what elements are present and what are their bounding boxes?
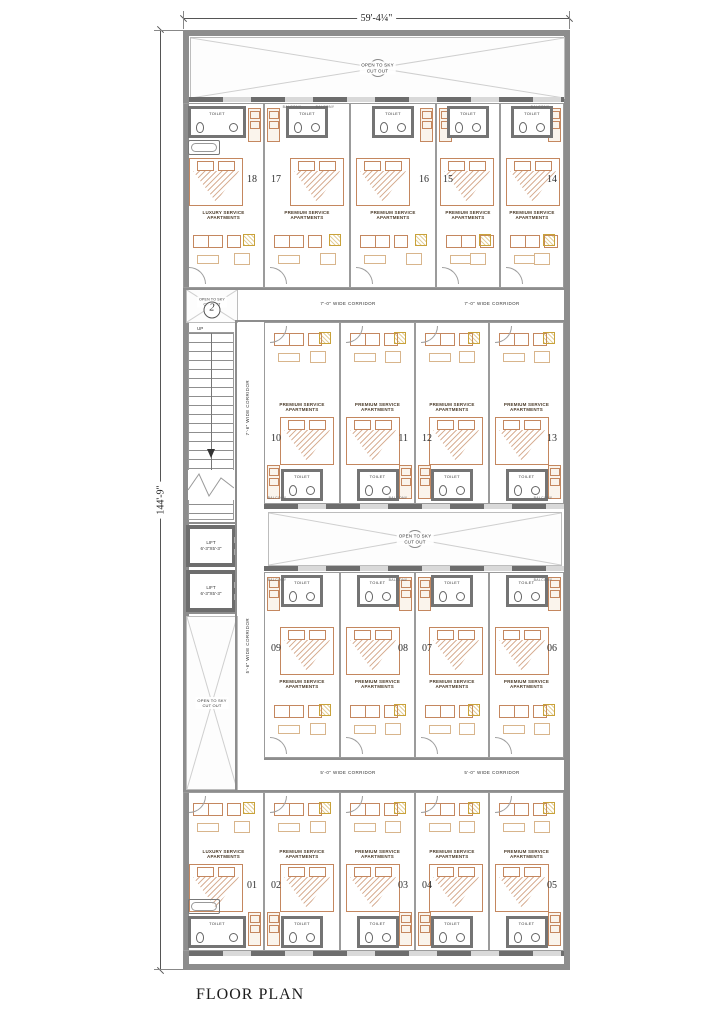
coffee-table-icon [197, 823, 219, 832]
kitchen-unit [399, 912, 412, 946]
kitchen-unit [267, 465, 280, 499]
kitchen-unit [399, 465, 412, 499]
loveseat-icon [350, 705, 380, 718]
kitchen-unit [267, 912, 280, 946]
wc-icon [365, 591, 373, 602]
open-to-sky-top: OPEN TO SKY CUT OUT [190, 37, 565, 99]
unit-type-label: LUXURY SERVICE APARTMENTS [194, 849, 254, 860]
ottoman-icon [406, 253, 422, 265]
ottoman-icon [470, 253, 486, 265]
kitchen-unit [267, 108, 280, 142]
wall [183, 522, 236, 524]
cut-out-text: CUT OUT [399, 539, 432, 545]
balcony-label: BALCONY [389, 496, 408, 500]
lift-size-label: 6'-3"X5'-3" [201, 591, 222, 597]
washbasin-icon [531, 592, 540, 601]
toilet-label: TOILET [519, 580, 535, 585]
balcony-label: BALCONY [531, 105, 550, 109]
wc-icon [439, 591, 447, 602]
double-bed [429, 417, 483, 465]
washbasin-icon [311, 123, 320, 132]
unit-10: TOILET 10 PREMIUM SERVICE APARTMENTS [264, 322, 340, 504]
washbasin-icon [382, 486, 391, 495]
kitchen-unit [248, 108, 261, 142]
side-table-icon [319, 332, 331, 344]
bathtub-icon [188, 899, 220, 914]
side-table-icon [543, 234, 555, 246]
toilet-label: TOILET [294, 580, 310, 585]
wc-icon [514, 591, 522, 602]
double-bed [280, 417, 334, 465]
corridor-label-top-left: 7'-0" WIDE CORRIDOR [320, 301, 375, 306]
unit-17: TOILET 17 PREMIUM SERVICE APARTMENTS [264, 103, 350, 288]
unit-type-label: PREMIUM SERVICE APARTMENTS [502, 210, 562, 221]
unit-number: 06 [547, 643, 557, 654]
toilet-label: TOILET [519, 474, 535, 479]
toilet-label: TOILET [370, 580, 386, 585]
unit-07: TOILET 07 PREMIUM SERVICE APARTMENTS [415, 572, 489, 758]
washbasin-icon [456, 592, 465, 601]
open-to-sky-corridor: OPEN TO SKY CUT OUT 2 [186, 289, 238, 323]
kitchen-unit [418, 912, 431, 946]
unit-11: TOILET 11 PREMIUM SERVICE APARTMENTS [340, 322, 415, 504]
kitchen-unit [418, 577, 431, 611]
toilet-label: TOILET [519, 921, 535, 926]
loveseat-icon [193, 235, 223, 248]
unit-type-label: PREMIUM SERVICE APARTMENTS [348, 402, 408, 413]
balcony-label: BALCONY [316, 105, 335, 109]
unit-type-label: LUXURY SERVICE APARTMENTS [194, 210, 254, 221]
washbasin-icon [536, 123, 545, 132]
double-bed [290, 158, 344, 206]
toilet-room: TOILET [188, 916, 246, 948]
balcony-label: BALCONY [534, 496, 553, 500]
coffee-table-icon [450, 255, 472, 264]
kitchen-unit [548, 912, 561, 946]
unit-06: TOILET 06 PREMIUM SERVICE APARTMENTS [489, 572, 564, 758]
unit-type-label: PREMIUM SERVICE APARTMENTS [497, 402, 557, 413]
lift-2: LIFT 6'-3"X5'-3" [186, 570, 236, 612]
wc-icon [514, 932, 522, 943]
washbasin-icon [306, 933, 315, 942]
balcony-wall-strip [264, 566, 564, 571]
toilet-room: TOILET [372, 106, 414, 138]
ottoman-icon [459, 723, 475, 735]
wc-icon [196, 932, 204, 943]
unit-type-label: PREMIUM SERVICE APARTMENTS [497, 849, 557, 860]
toilet-label: TOILET [294, 474, 310, 479]
wall [264, 758, 564, 760]
armchair-icon [308, 235, 322, 248]
ottoman-icon [459, 821, 475, 833]
cut-out-text: CUT OUT [197, 703, 226, 708]
coffee-table-icon [503, 353, 525, 362]
extension-line [183, 11, 184, 29]
coffee-table-icon [278, 255, 300, 264]
wall [183, 288, 564, 290]
side-table-icon [394, 704, 406, 716]
unit-type-label: PREMIUM SERVICE APARTMENTS [422, 849, 482, 860]
unit-number: 12 [422, 433, 432, 444]
wc-icon [294, 122, 302, 133]
unit-number: 15 [443, 174, 453, 185]
kitchen-unit [420, 108, 433, 142]
ottoman-icon [534, 723, 550, 735]
ottoman-icon [234, 253, 250, 265]
washbasin-icon [472, 123, 481, 132]
coffee-table-icon [278, 823, 300, 832]
wall [235, 320, 237, 790]
toilet-label: TOILET [460, 111, 476, 116]
wc-icon [289, 485, 297, 496]
toilet-room: TOILET [281, 575, 323, 607]
dimension-top-label: 59'-4¼" [357, 13, 397, 24]
double-bed [346, 417, 400, 465]
unit-02: TOILET 02 PREMIUM SERVICE APARTMENTS [264, 792, 340, 951]
extension-line [569, 11, 570, 29]
toilet-room: TOILET [431, 916, 473, 948]
unit-12: TOILET 12 PREMIUM SERVICE APARTMENTS [415, 322, 489, 504]
loveseat-icon [446, 235, 476, 248]
toilet-label: TOILET [385, 111, 401, 116]
unit-number: 09 [271, 643, 281, 654]
double-bed [346, 627, 400, 675]
side-table-icon [415, 234, 427, 246]
toilet-room: TOILET [506, 916, 548, 948]
open-to-sky-middle: OPEN TO SKY CUT OUT [268, 512, 562, 566]
ottoman-icon [310, 723, 326, 735]
stairs-up-label: UP [196, 326, 204, 331]
toilet-room: TOILET [281, 916, 323, 948]
toilet-room: TOILET [431, 575, 473, 607]
unit-number: 01 [247, 880, 257, 891]
unit-type-label: PREMIUM SERVICE APARTMENTS [497, 679, 557, 690]
double-bed [356, 158, 410, 206]
unit-number: 10 [271, 433, 281, 444]
unit-type-label: PREMIUM SERVICE APARTMENTS [438, 210, 498, 221]
toilet-label: TOILET [524, 111, 540, 116]
unit-05: TOILET 05 PREMIUM SERVICE APARTMENTS [489, 792, 564, 951]
unit-03: TOILET 03 PREMIUM SERVICE APARTMENTS [340, 792, 415, 951]
wc-icon [439, 932, 447, 943]
unit-15: TOILET 15 PREMIUM SERVICE APARTMENTS [436, 103, 500, 288]
toilet-room: TOILET [281, 469, 323, 501]
unit-type-label: PREMIUM SERVICE APARTMENTS [277, 210, 337, 221]
washbasin-icon [229, 933, 238, 942]
unit-number: 18 [247, 174, 257, 185]
toilet-label: TOILET [444, 580, 460, 585]
unit-number: 16 [419, 174, 429, 185]
double-bed [280, 864, 334, 912]
double-bed [429, 627, 483, 675]
unit-14: TOILET 14 PREMIUM SERVICE APARTMENTS [500, 103, 564, 288]
cut-out-text: CUT OUT [361, 68, 394, 74]
lift-size-label: 6'-3"X5'-3" [201, 546, 222, 552]
side-table-icon [243, 802, 255, 814]
lift-1: LIFT 6'-3"X5'-3" [186, 525, 236, 567]
wc-icon [365, 485, 373, 496]
unit-type-label: PREMIUM SERVICE APARTMENTS [272, 849, 332, 860]
wc-icon [455, 122, 463, 133]
floor-plan-title: FLOOR PLAN [196, 986, 304, 1004]
toilet-label: TOILET [299, 111, 315, 116]
level-marker: 2 [204, 301, 221, 318]
double-bed [189, 158, 243, 206]
wall [183, 612, 236, 614]
coffee-table-icon [364, 255, 386, 264]
washbasin-icon [397, 123, 406, 132]
open-to-sky-text: OPEN TO SKY [361, 62, 394, 68]
wc-icon [380, 122, 388, 133]
unit-type-label: PREMIUM SERVICE APARTMENTS [272, 402, 332, 413]
armchair-icon [394, 235, 408, 248]
loveseat-icon [510, 235, 540, 248]
ottoman-icon [385, 821, 401, 833]
loveseat-icon [274, 235, 304, 248]
open-to-sky-text: OPEN TO SKY [399, 533, 432, 539]
washbasin-icon [382, 592, 391, 601]
coffee-table-icon [354, 725, 376, 734]
dimension-top: 59'-4¼" [183, 18, 570, 19]
toilet-room: TOILET [431, 469, 473, 501]
side-table-icon [319, 802, 331, 814]
coffee-table-icon [278, 725, 300, 734]
kitchen-unit [248, 912, 261, 946]
open-to-sky-label: OPEN TO SKY CUT OUT [359, 61, 396, 74]
corridor-label-bottom-left: 5'-0" WIDE CORRIDOR [320, 770, 375, 775]
unit-number: 08 [398, 643, 408, 654]
toilet-room: TOILET [511, 106, 553, 138]
balcony-label: BALCONY [534, 578, 553, 582]
unit-number: 07 [422, 643, 432, 654]
balcony-label: BALCONY [389, 578, 408, 582]
toilet-label: TOILET [370, 474, 386, 479]
toilet-room: TOILET [447, 106, 489, 138]
loveseat-icon [274, 705, 304, 718]
side-table-icon [243, 234, 255, 246]
corridor-label-bottom-right: 5'-0" WIDE CORRIDOR [464, 770, 519, 775]
unit-04: TOILET 04 PREMIUM SERVICE APARTMENTS [415, 792, 489, 951]
coffee-table-icon [197, 255, 219, 264]
toilet-label: TOILET [444, 921, 460, 926]
unit-number: 05 [547, 880, 557, 891]
unit-type-label: PREMIUM SERVICE APARTMENTS [348, 849, 408, 860]
toilet-label: TOILET [370, 921, 386, 926]
kitchen-unit [418, 465, 431, 499]
double-bed [429, 864, 483, 912]
coffee-table-icon [354, 823, 376, 832]
wc-icon [519, 122, 527, 133]
side-table-icon [543, 332, 555, 344]
toilet-label: TOILET [209, 111, 225, 116]
loveseat-icon [360, 235, 390, 248]
ottoman-icon [385, 351, 401, 363]
wc-icon [365, 932, 373, 943]
unit-number: 11 [398, 433, 408, 444]
kitchen-unit [548, 577, 561, 611]
extension-line [154, 30, 183, 31]
bathtub-icon [188, 140, 220, 155]
unit-number: 03 [398, 880, 408, 891]
kitchen-unit [267, 577, 280, 611]
ottoman-icon [459, 351, 475, 363]
unit-08: TOILET 08 PREMIUM SERVICE APARTMENTS [340, 572, 415, 758]
stair-direction-arrow-icon [207, 449, 215, 458]
washbasin-icon [531, 933, 540, 942]
unit-type-label: PREMIUM SERVICE APARTMENTS [422, 402, 482, 413]
corridor-label-top-right: 7'-0" WIDE CORRIDOR [464, 301, 519, 306]
double-bed [495, 864, 549, 912]
side-table-icon [543, 704, 555, 716]
washbasin-icon [306, 486, 315, 495]
balcony-label: BALCONY [283, 105, 302, 109]
coffee-table-icon [354, 353, 376, 362]
coffee-table-icon [503, 725, 525, 734]
dimension-left-label: 144'-9" [156, 481, 167, 518]
side-table-icon [394, 802, 406, 814]
washbasin-icon [306, 592, 315, 601]
stair-rail [211, 333, 212, 491]
toilet-label: TOILET [209, 921, 225, 926]
washbasin-icon [229, 123, 238, 132]
side-table-icon [468, 704, 480, 716]
washbasin-icon [382, 933, 391, 942]
dimension-left: 144'-9" [160, 30, 161, 970]
kitchen-unit [399, 577, 412, 611]
corridor-label-vertical-upper: 7'-6" WIDE CORRIDOR [245, 380, 250, 435]
kitchen-unit [548, 465, 561, 499]
balcony-label: BALCONY [268, 578, 287, 582]
side-table-icon [394, 332, 406, 344]
unit-type-label: PREMIUM SERVICE APARTMENTS [363, 210, 423, 221]
toilet-room: TOILET [188, 106, 246, 138]
wc-icon [289, 591, 297, 602]
coffee-table-icon [514, 255, 536, 264]
ottoman-icon [234, 821, 250, 833]
unit-16: TOILET 16 PREMIUM SERVICE APARTMENTS [350, 103, 436, 288]
ottoman-icon [320, 253, 336, 265]
toilet-label: TOILET [444, 474, 460, 479]
ottoman-icon [534, 351, 550, 363]
balcony-wall-strip [264, 504, 564, 509]
side-table-icon [319, 704, 331, 716]
open-to-sky-label: OPEN TO SKY CUT OUT [195, 697, 228, 709]
double-bed [280, 627, 334, 675]
ottoman-icon [385, 723, 401, 735]
double-bed [495, 417, 549, 465]
coffee-table-icon [429, 823, 451, 832]
armchair-icon [227, 803, 241, 816]
unit-type-label: PREMIUM SERVICE APARTMENTS [272, 679, 332, 690]
unit-01: TOILET 01 LUXURY SERVICE APARTMENTS [183, 792, 264, 951]
wc-icon [196, 122, 204, 133]
wc-icon [439, 485, 447, 496]
double-bed [495, 627, 549, 675]
coffee-table-icon [429, 725, 451, 734]
ottoman-icon [310, 821, 326, 833]
unit-number: 13 [547, 433, 557, 444]
unit-18: TOILET 18 LUXURY SERVICE APARTMENTS [183, 103, 264, 288]
side-table-icon [543, 802, 555, 814]
side-table-icon [468, 802, 480, 814]
stair-break-line [188, 470, 234, 500]
balcony-wall-strip [189, 97, 564, 102]
toilet-room: TOILET [286, 106, 328, 138]
side-table-icon [329, 234, 341, 246]
side-table-icon [468, 332, 480, 344]
ottoman-icon [534, 821, 550, 833]
open-to-sky-label: OPEN TO SKY CUT OUT [397, 532, 434, 545]
toilet-label: TOILET [294, 921, 310, 926]
coffee-table-icon [429, 353, 451, 362]
balcony-wall-strip [189, 951, 564, 956]
washbasin-icon [531, 486, 540, 495]
wc-icon [514, 485, 522, 496]
coffee-table-icon [278, 353, 300, 362]
corridor-label-vertical-lower: 5'-6" WIDE CORRIDOR [245, 618, 250, 673]
extension-line [154, 969, 183, 970]
double-bed [346, 864, 400, 912]
washbasin-icon [456, 486, 465, 495]
loveseat-icon [425, 705, 455, 718]
unit-number: 17 [271, 174, 281, 185]
coffee-table-icon [503, 823, 525, 832]
unit-number: 14 [547, 174, 557, 185]
toilet-room: TOILET [357, 916, 399, 948]
loveseat-icon [499, 705, 529, 718]
floor-plan-sheet: 59'-4¼" 144'-9" OPEN TO SKY CUT OUT OPEN… [0, 0, 724, 1024]
wc-icon [289, 932, 297, 943]
unit-type-label: PREMIUM SERVICE APARTMENTS [348, 679, 408, 690]
washbasin-icon [456, 933, 465, 942]
unit-09: TOILET 09 PREMIUM SERVICE APARTMENTS [264, 572, 340, 758]
open-to-sky-left: OPEN TO SKY CUT OUT [186, 616, 238, 790]
unit-number: 02 [271, 880, 281, 891]
ottoman-icon [310, 351, 326, 363]
unit-number: 04 [422, 880, 432, 891]
ottoman-icon [534, 253, 550, 265]
armchair-icon [227, 235, 241, 248]
unit-type-label: PREMIUM SERVICE APARTMENTS [422, 679, 482, 690]
unit-13: TOILET 13 PREMIUM SERVICE APARTMENTS [489, 322, 564, 504]
balcony-label: BALCONY [268, 496, 287, 500]
side-table-icon [479, 234, 491, 246]
